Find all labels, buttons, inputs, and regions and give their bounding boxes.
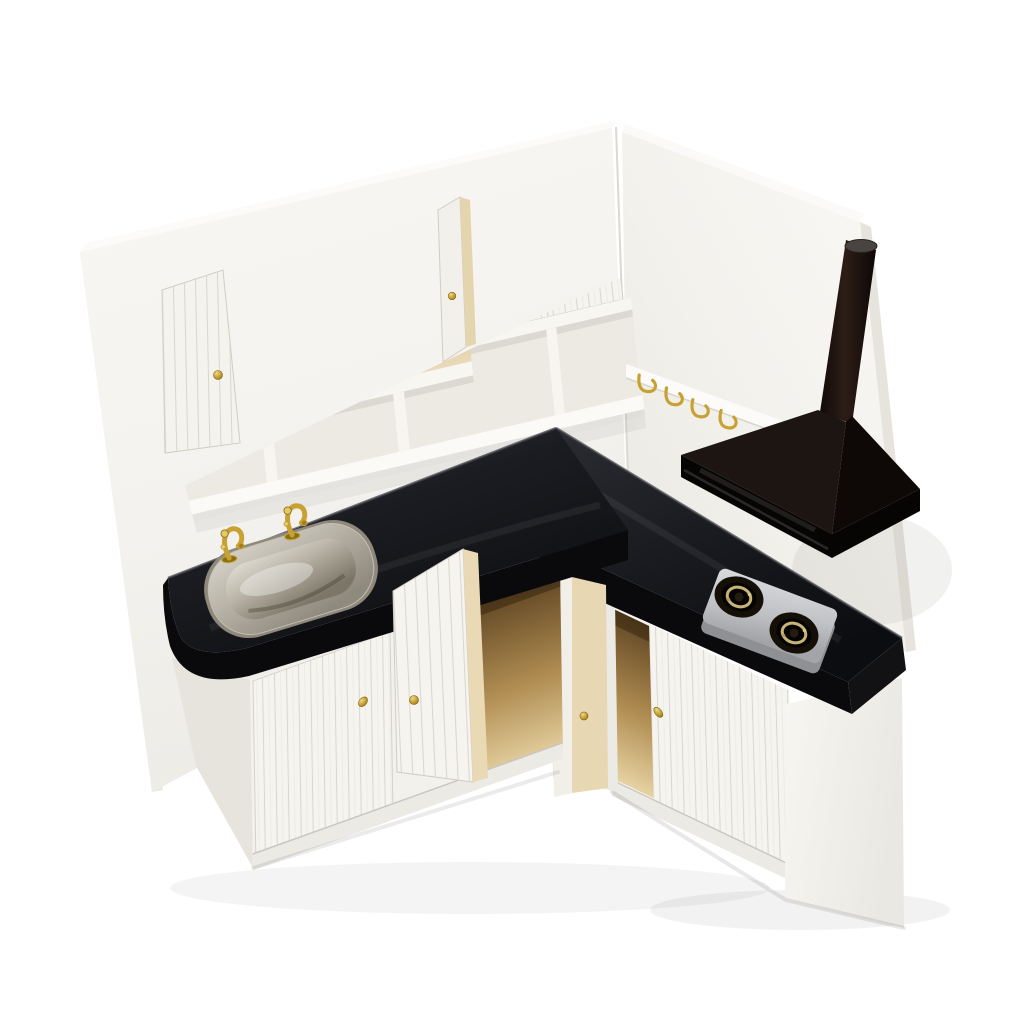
door-knob: [580, 712, 588, 720]
chimney-cap: [845, 240, 877, 253]
wall-cabinet-door-4-open: [438, 197, 476, 362]
door-knob: [448, 292, 456, 300]
open-door-back: [572, 577, 608, 793]
product-photo: [0, 0, 1024, 1024]
base-right-side-face: [785, 678, 904, 928]
miniature-kitchen-scene: [0, 0, 1024, 1024]
door-knob: [214, 371, 223, 380]
door-knob: [410, 696, 419, 705]
base-left-door-open: [393, 549, 488, 782]
